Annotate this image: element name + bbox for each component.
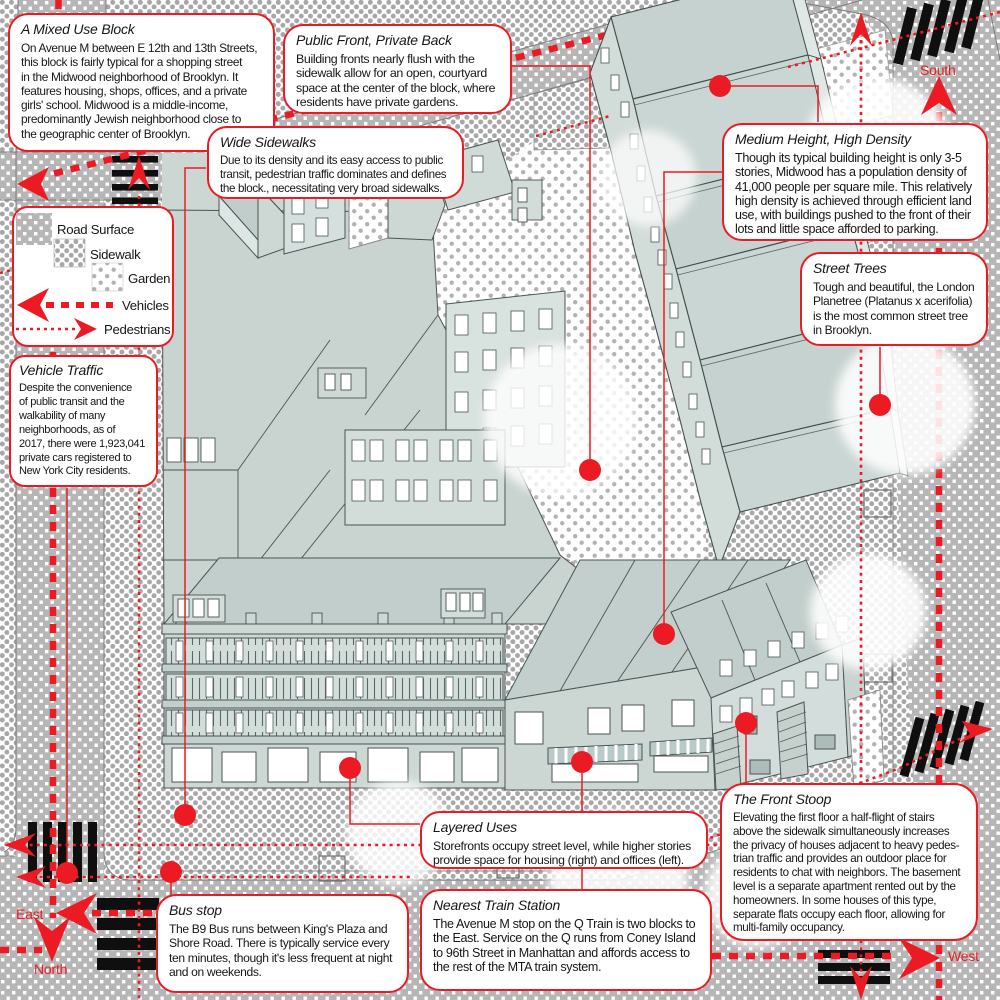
- svg-text:Pedestrians: Pedestrians: [104, 322, 171, 337]
- svg-text:Vehicles: Vehicles: [122, 298, 169, 313]
- svg-text:Garden: Garden: [128, 271, 170, 286]
- svg-text:Road Surface: Road Surface: [57, 222, 134, 237]
- svg-text:Sidewalk: Sidewalk: [90, 247, 141, 262]
